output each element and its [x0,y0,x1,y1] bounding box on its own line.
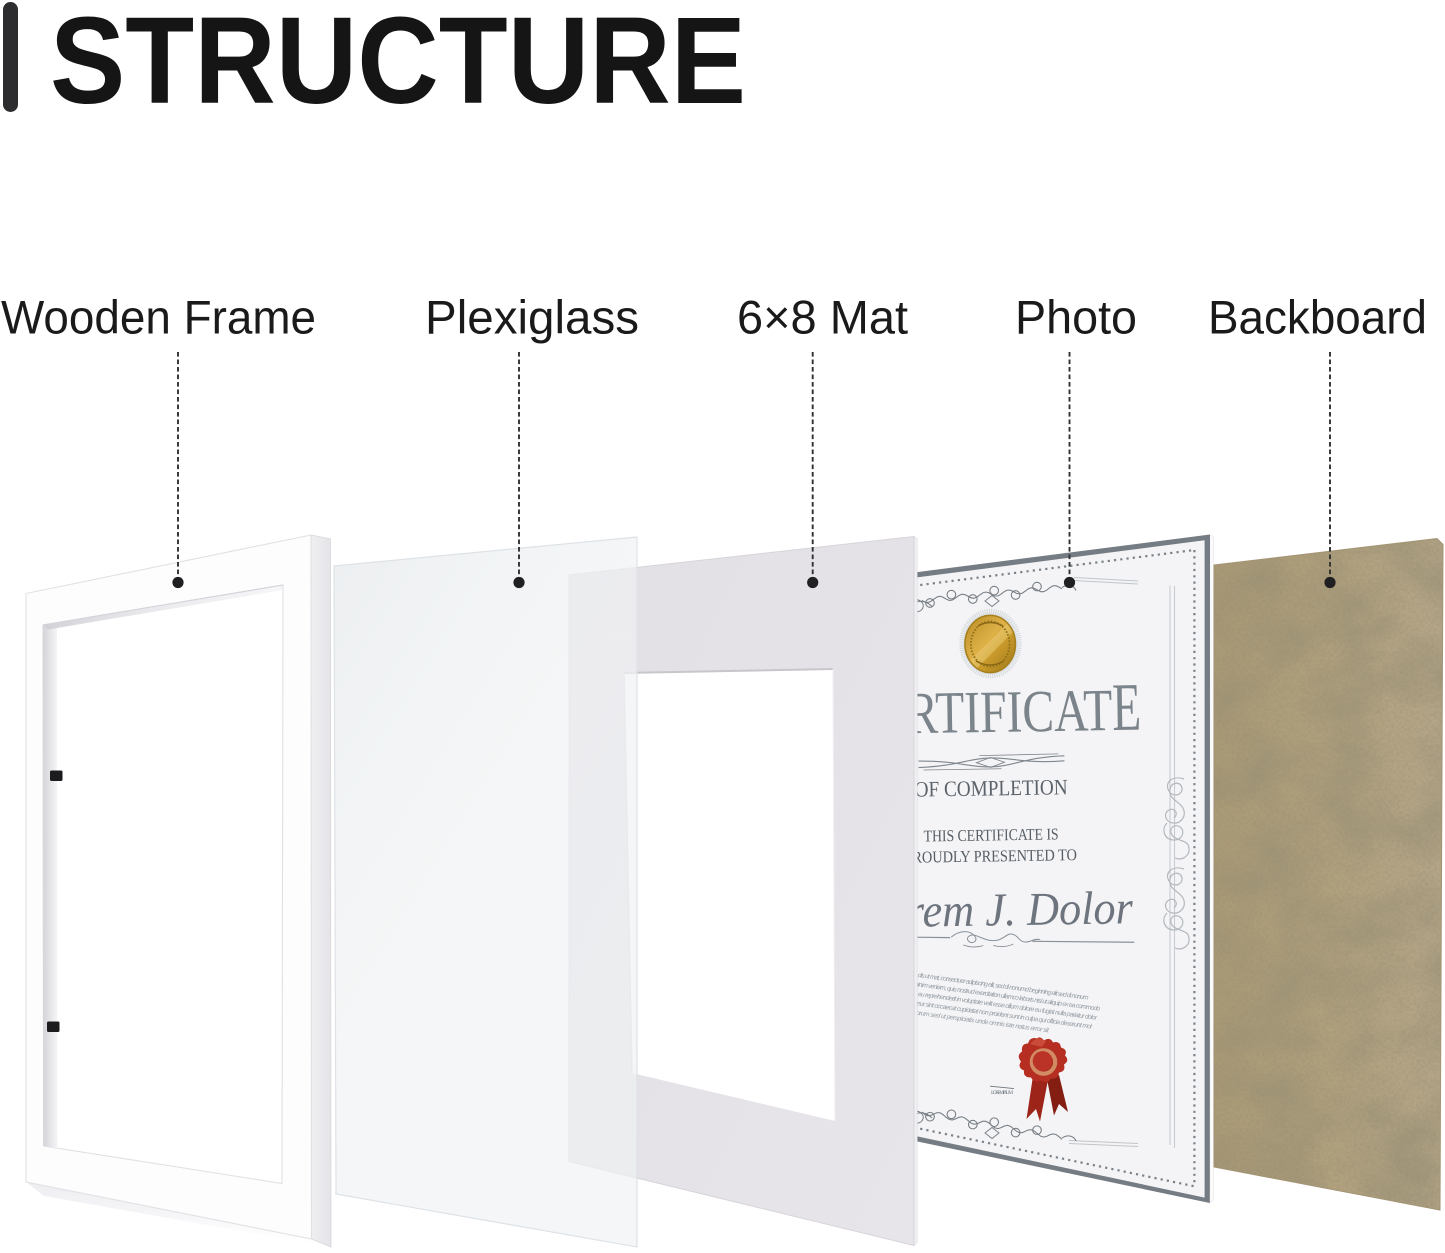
svg-text:orem J. Dolor: orem J. Dolor [884,882,1133,938]
svg-text:Backboard: Backboard [1208,291,1427,344]
svg-text:OF COMPLETION: OF COMPLETION [914,774,1067,801]
svg-text:LOREM IPSUM: LOREM IPSUM [991,1090,1013,1096]
svg-text:PROUDLY PRESENTED TO: PROUDLY PRESENTED TO [904,845,1077,867]
svg-text:E: E [1112,669,1142,745]
svg-text:STRUCTURE: STRUCTURE [50,0,746,130]
svg-text:Wooden Frame: Wooden Frame [1,291,316,344]
svg-text:Plexiglass: Plexiglass [425,291,639,344]
svg-text:THIS CERTIFICATE IS: THIS CERTIFICATE IS [923,824,1058,845]
svg-text:Photo: Photo [1015,291,1137,344]
svg-text:6×8 Mat: 6×8 Mat [737,291,908,344]
svg-text:RTIFICAT: RTIFICAT [906,677,1113,746]
